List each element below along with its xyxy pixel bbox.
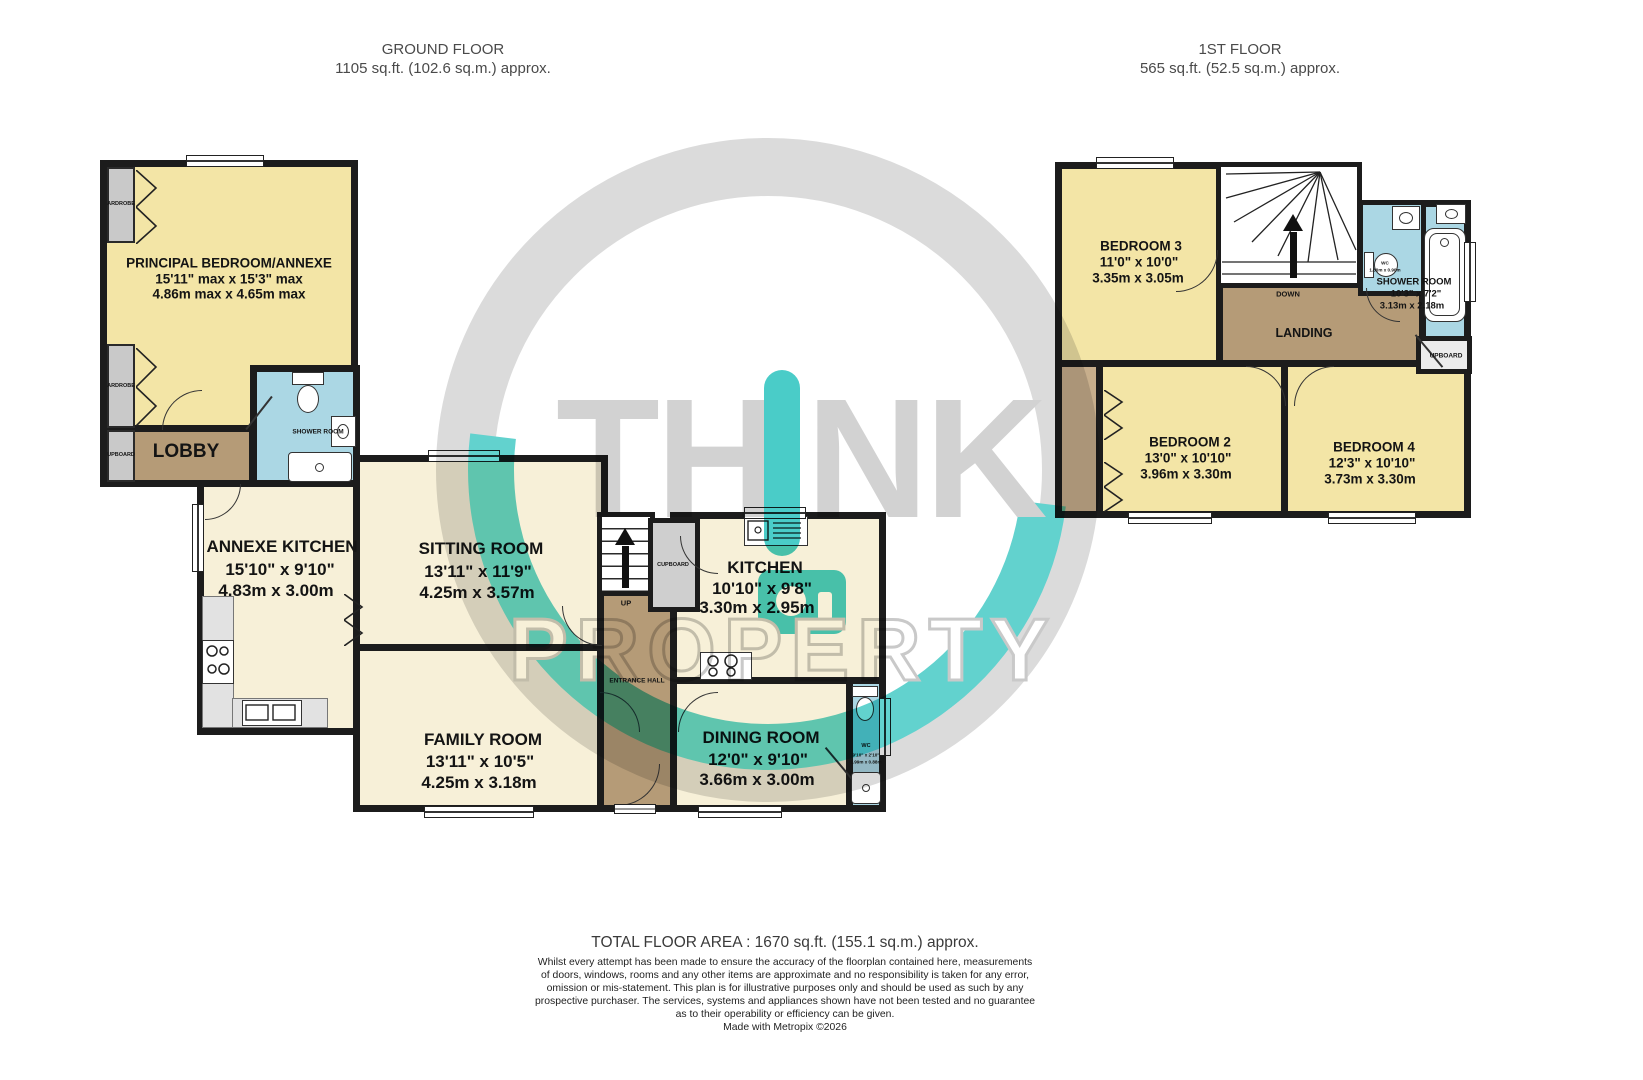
room-name: BEDROOM 2 (1149, 435, 1231, 450)
room-name: BEDROOM 3 (1100, 239, 1182, 254)
first-floor-title: 1ST FLOOR 565 sq.ft. (52.5 sq.m.) approx… (1140, 40, 1340, 78)
toilet-cistern-icon (1364, 252, 1374, 278)
room-dims-m: 3.35m x 3.05m (1092, 271, 1184, 286)
window (698, 806, 782, 818)
sink-basins-icon (243, 701, 300, 724)
toilet-cistern-icon (292, 372, 324, 385)
room-dims-ft: 10'3" x 7'2" (1391, 289, 1442, 300)
sink-icon (242, 700, 302, 726)
window (744, 507, 806, 519)
room-dims-m: 4.25m x 3.57m (419, 583, 534, 603)
room-name: PRINCIPAL BEDROOM/ANNEXE (126, 256, 332, 271)
window (192, 504, 204, 572)
hob-icon (700, 652, 752, 680)
room-dims-ft: 13'0" x 10'10" (1145, 451, 1232, 466)
toilet-cistern-icon (852, 686, 878, 697)
basin-bowl-icon (1445, 209, 1458, 219)
room-dims-m: 3.96m x 3.30m (1140, 467, 1232, 482)
room-name: FAMILY ROOM (424, 730, 542, 750)
basin-icon (1392, 206, 1420, 230)
floorplan-canvas: GROUND FLOOR 1105 sq.ft. (102.6 sq.m.) a… (0, 0, 1643, 1080)
window (424, 806, 534, 818)
down-arrow-shaft (1290, 232, 1297, 278)
room-dims-ft: 10'10" x 9'8" (712, 579, 812, 599)
bifold-door-icon (136, 348, 160, 426)
room-dims-m: 4.86m max x 4.65m max (152, 287, 305, 302)
cupboard-label: UPBOARD (107, 452, 135, 458)
room-dims-ft: 11'0" x 10'0" (1100, 255, 1179, 270)
down-arrow-head (1283, 214, 1303, 231)
hob-rings-icon (701, 653, 750, 678)
bifold-door-icon (344, 594, 366, 646)
room-name: CUPBOARD (657, 562, 689, 568)
room-dims-ft: 12'3" x 10'10" (1329, 456, 1416, 471)
disclaimer-line: as to their operability or efficiency ca… (676, 1009, 895, 1020)
room-dims-m: 4.25m x 3.18m (421, 773, 536, 793)
window (879, 698, 891, 756)
first-floor-title-line2: 565 sq.ft. (52.5 sq.m.) approx. (1140, 59, 1340, 78)
room-name: ENTRANCE HALL (609, 678, 664, 685)
ground-floor-title-line2: 1105 sq.ft. (102.6 sq.m.) approx. (335, 59, 551, 78)
window (428, 450, 500, 462)
hob-rings-icon (203, 641, 232, 682)
disclaimer-line: omission or mis-statement. This plan is … (547, 983, 1024, 994)
room-name: SITTING ROOM (419, 539, 544, 559)
room-name: WC (1381, 261, 1389, 266)
hob-icon (202, 640, 234, 684)
stairs-label: UP (621, 599, 631, 608)
front-door-gap (614, 804, 656, 814)
room-name: SHOWER ROOM (292, 429, 343, 436)
room-dims-ft: 13'11" x 10'5" (426, 752, 534, 772)
kitchen-sink-icon (744, 516, 808, 546)
room-dims-m: 3.73m x 3.30m (1324, 472, 1416, 487)
ground-floor-title-line1: GROUND FLOOR (335, 40, 551, 59)
first-floor-title-line1: 1ST FLOOR (1140, 40, 1340, 59)
room-name: LOBBY (153, 441, 220, 463)
bifold-door-icon (136, 170, 160, 244)
room-name: DINING ROOM (702, 728, 819, 748)
disclaimer-line: of doors, windows, rooms and any other i… (541, 970, 1029, 981)
shower-tray-icon (851, 772, 881, 804)
kitchen-sink-detail-icon (745, 517, 806, 544)
cupboard-label: UPBOARD (1430, 353, 1463, 360)
wardrobe-label: ARDROBE (107, 383, 135, 389)
ground-floor-title: GROUND FLOOR 1105 sq.ft. (102.6 sq.m.) a… (335, 40, 551, 78)
window (1096, 157, 1174, 169)
shower-tray-icon (288, 452, 352, 482)
stairs-label: DOWN (1276, 290, 1300, 299)
bath-tap-icon (1440, 238, 1449, 247)
window (186, 155, 264, 167)
room-name: WC (861, 743, 870, 749)
room-dims-ft: 15'11" max x 15'3" max (155, 272, 303, 287)
shower-drain-icon (862, 784, 870, 792)
room-dims-ft: 15'10" x 9'10" (225, 560, 334, 580)
toilet-bowl-icon (856, 697, 874, 721)
room-dims-ft: 9'10" x 2'10" (853, 753, 880, 758)
disclaimer-line: Whilst every attempt has been made to en… (538, 957, 1032, 968)
shower-drain-icon (315, 463, 324, 472)
wardrobe-label: ARDROBE (107, 201, 135, 207)
room-name: BEDROOM 4 (1333, 440, 1415, 455)
room-name: LANDING (1276, 326, 1333, 340)
up-arrow-head (615, 528, 635, 545)
total-floor-area: TOTAL FLOOR AREA : 1670 sq.ft. (155.1 sq… (591, 934, 978, 952)
room-dims-m: 3.66m x 3.00m (699, 770, 814, 790)
room-name: KITCHEN (727, 558, 803, 578)
window (1128, 512, 1212, 524)
room-dims-ft: 12'0" x 9'10" (708, 750, 808, 770)
credit-line: Made with Metropix ©2026 (723, 1022, 847, 1033)
up-arrow-shaft (622, 546, 629, 588)
toilet-bowl-icon (297, 385, 319, 413)
room-dims-m: 4.83m x 3.00m (218, 581, 333, 601)
window (1464, 242, 1476, 302)
basin-bowl-icon (1399, 212, 1413, 224)
room-dims-m: 3.30m x 2.95m (699, 598, 814, 618)
disclaimer-line: prospective purchaser. The services, sys… (535, 996, 1035, 1007)
room-name: ANNEXE KITCHEN (206, 537, 357, 557)
bifold-door-icon (1104, 390, 1126, 440)
room-dims-ft: 13'11" x 11'9" (424, 562, 531, 582)
room-name: SHOWER ROOM (1377, 277, 1452, 288)
room-dims-m: 1.80m x 0.90m (1369, 268, 1400, 273)
window (1328, 512, 1416, 524)
basin-icon (1436, 204, 1466, 224)
bifold-door-icon (1104, 462, 1126, 512)
room-dims-m: 3.13m x 2.18m (1380, 301, 1444, 312)
room-dims-m: 2.99m x 0.88m (850, 760, 881, 765)
